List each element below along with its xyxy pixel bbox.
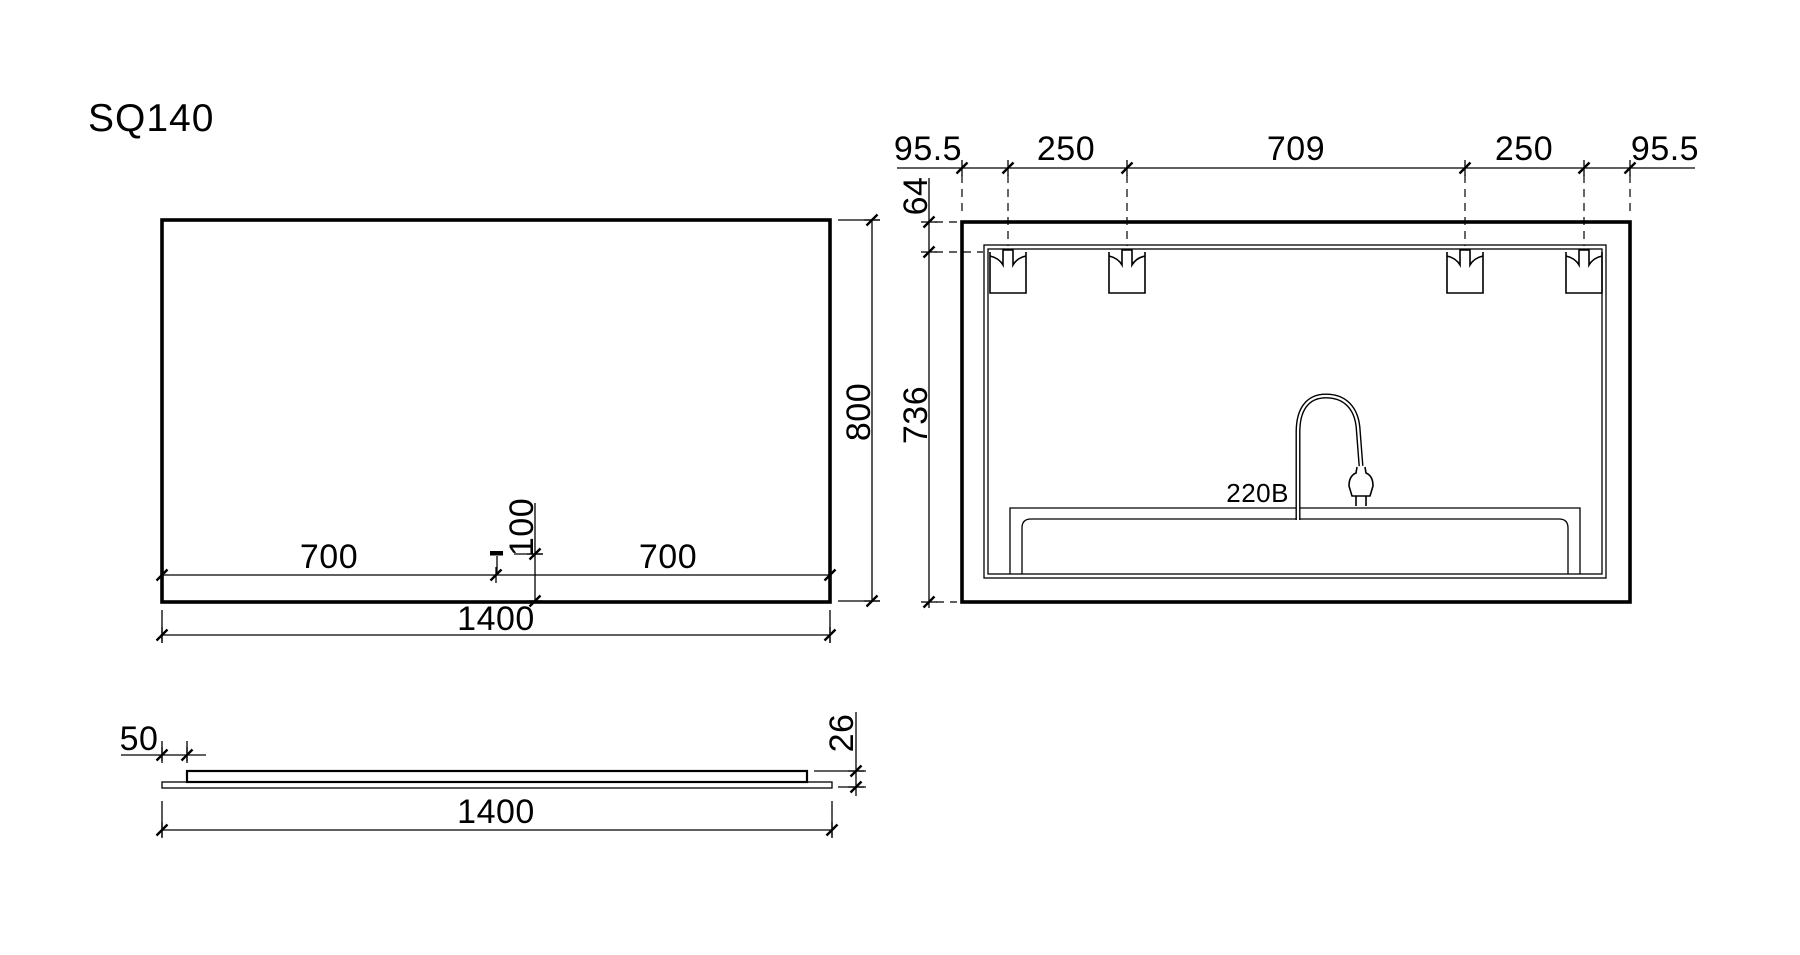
front-bottom-dimension: 700 700 bbox=[157, 538, 836, 583]
front-outline bbox=[162, 220, 830, 602]
mounting-bracket bbox=[990, 250, 1026, 293]
front-switch-dimension: 100 bbox=[490, 498, 543, 607]
rear-outline bbox=[962, 222, 1630, 602]
mounting-bracket bbox=[1447, 250, 1483, 293]
mounting-bracket bbox=[1566, 250, 1602, 293]
dim-rear-top-offset: 64 bbox=[897, 177, 935, 216]
rear-left-dimension-chain: 64 736 bbox=[897, 177, 983, 608]
dim-side-inset: 50 bbox=[120, 720, 159, 758]
technical-drawing-sheet: SQ140 700 700 100 1400 bbox=[0, 0, 1800, 955]
voltage-label: 220B bbox=[1226, 478, 1289, 508]
side-width-dimension: 1400 bbox=[157, 793, 838, 838]
dim-front-bottom-left: 700 bbox=[300, 538, 358, 576]
rear-top-dimension-chain: 95.5 250 709 250 95.5 bbox=[894, 130, 1699, 246]
mounting-bracket bbox=[1109, 250, 1145, 293]
dim-front-bottom-right: 700 bbox=[639, 538, 697, 576]
dim-rear-center: 709 bbox=[1267, 130, 1325, 168]
touch-switch-mark bbox=[490, 551, 503, 556]
dim-rear-edge-right: 95.5 bbox=[1631, 130, 1699, 168]
power-cable bbox=[1298, 396, 1373, 520]
dim-rear-height: 736 bbox=[897, 386, 935, 444]
front-width-dimension: 1400 bbox=[157, 600, 836, 643]
dim-rear-bracket-right: 250 bbox=[1495, 130, 1553, 168]
side-inset-dimension: 50 bbox=[120, 720, 206, 763]
drawing-svg: SQ140 700 700 100 1400 bbox=[0, 0, 1800, 955]
dim-side-thickness: 26 bbox=[823, 714, 861, 753]
dim-rear-bracket-left: 250 bbox=[1037, 130, 1095, 168]
driver-tray bbox=[1010, 508, 1580, 574]
dim-front-height: 800 bbox=[840, 383, 878, 441]
side-thickness-dimension: 26 bbox=[814, 712, 866, 796]
side-backing-panel bbox=[187, 771, 807, 782]
dim-rear-edge-left: 95.5 bbox=[894, 130, 962, 168]
side-view: 50 26 1400 bbox=[120, 712, 866, 838]
mounting-brackets bbox=[990, 250, 1602, 293]
power-plug-icon bbox=[1349, 467, 1373, 506]
dim-front-switch-height: 100 bbox=[503, 498, 541, 556]
rear-inner-frame bbox=[984, 245, 1606, 578]
front-height-dimension: 800 bbox=[838, 215, 880, 607]
dim-side-width: 1400 bbox=[457, 793, 535, 831]
rear-view: 220B 95.5 250 709 250 95.5 64 736 bbox=[894, 130, 1699, 608]
dim-front-width: 1400 bbox=[457, 600, 535, 638]
front-view: 700 700 100 1400 800 bbox=[157, 215, 881, 644]
model-label: SQ140 bbox=[88, 97, 214, 140]
